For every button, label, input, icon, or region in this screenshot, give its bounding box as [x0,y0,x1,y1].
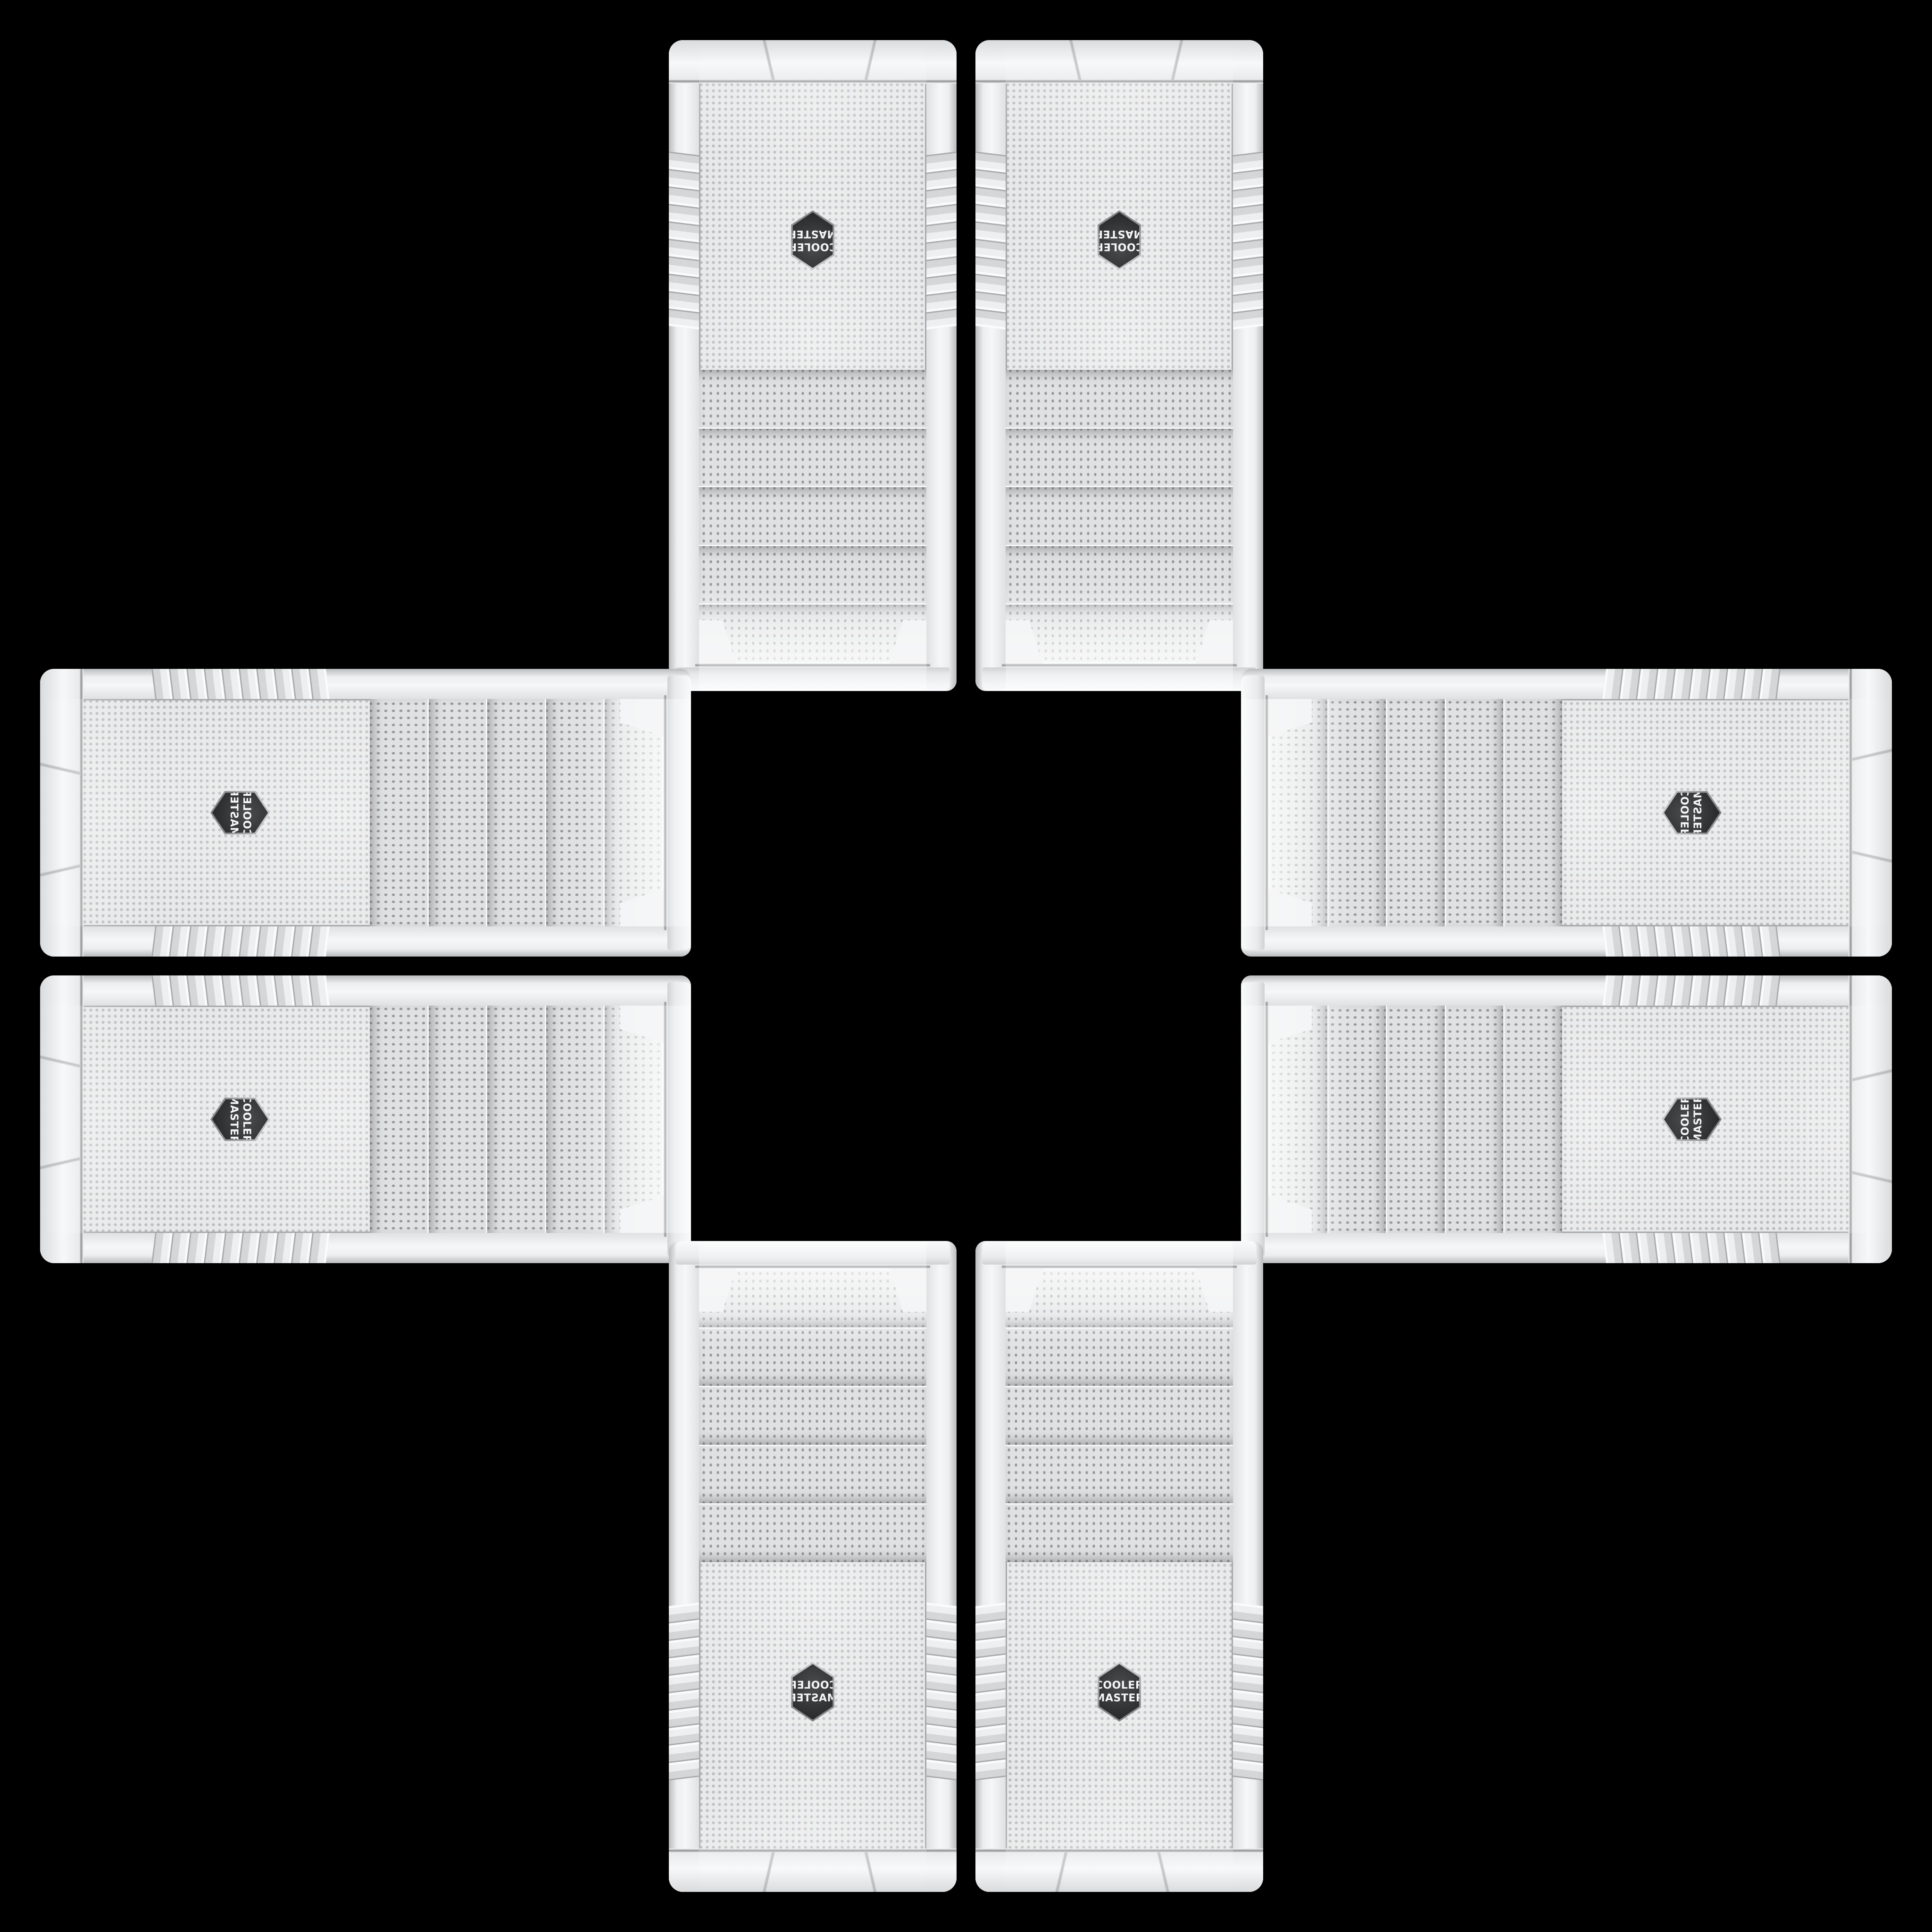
cooler-master-logo-icon: COOLER MASTER [1098,212,1141,268]
drive-bay-covers [699,1268,926,1562]
logo-text-line2: MASTER [788,227,838,240]
drive-bay-covers [370,1006,664,1233]
logo-text-line2: MASTER [1095,227,1144,240]
case-top-edge-cap [667,675,691,950]
grip-ribs-left [1602,1233,1781,1263]
case-side-bezel-right [1241,975,1892,1006]
case-side-bezel-right [669,1241,699,1892]
drive-bay-covers [370,699,664,926]
logo-text-line1: COOLER [789,240,837,253]
case-top-edge-cap [667,982,691,1257]
grip-ribs-right [975,151,1006,330]
product-montage-canvas: COOLER MASTER [0,0,1932,1932]
cooler-master-logo-badge: COOLER MASTER [210,789,270,836]
drive-bay-covers [1006,370,1233,664]
logo-text-line1: COOLER [240,1095,253,1144]
case-side-bezel-right [40,1233,691,1263]
cooler-master-logo-badge: COOLER MASTER [1662,1096,1722,1143]
drive-bay-cover [1006,370,1233,429]
chrome-trim-bottom [669,80,957,83]
case-front-panel: COOLER MASTER [1006,40,1233,691]
case-top-edge-cap [675,667,950,691]
drive-bay-cover [1386,1006,1445,1233]
case-front-panel: COOLER MASTER [1241,1006,1892,1233]
drive-bay-cover [1327,1006,1386,1233]
case-top-left: COOLER MASTER [669,40,957,691]
mesh-intake-panel: COOLER MASTER [699,1562,926,1849]
grip-ribs-left [975,1602,1006,1781]
drive-bay-cover [370,699,429,926]
drive-bay-cover [1503,1006,1562,1233]
chrome-trim-top [695,664,930,667]
pc-case: COOLER MASTER [1241,975,1892,1263]
drive-bay-cover [1006,546,1233,605]
drive-bay-cover [1006,1327,1233,1386]
drive-bay-cover [1006,1445,1233,1504]
case-bottom-left: COOLER MASTER [669,1241,957,1892]
chrome-trim-top [1002,664,1237,667]
case-side-bezel-left [1241,1233,1892,1263]
case-bottom-cap [669,1849,957,1892]
chrome-trim-bottom [975,80,1263,83]
mesh-intake-panel: COOLER MASTER [83,1006,370,1233]
cooler-master-logo-icon: COOLER MASTER [212,791,268,834]
grip-ribs-left [1602,669,1781,699]
drive-bay-cover [699,1445,926,1504]
drive-bay-cover [699,370,926,429]
case-bottom-cap [40,975,83,1263]
cooler-master-logo-badge: COOLER MASTER [1662,789,1722,836]
drive-bay-cover [699,1327,926,1386]
case-side-bezel-left [40,975,691,1006]
drive-bay-cover [370,1006,429,1233]
drive-bay-cover [1445,699,1504,926]
cooler-master-logo-badge: COOLER MASTER [789,1662,836,1722]
drive-bay-cover [1006,487,1233,546]
logo-text-line2: MASTER [1692,788,1705,838]
mesh-intake-panel: COOLER MASTER [1562,1006,1849,1233]
case-side-bezel-right [669,40,699,691]
case-top-edge-cap [675,1241,950,1265]
grip-ribs-right [669,151,699,330]
logo-text-line1: COOLER [1679,789,1692,837]
chrome-trim-bottom [975,1849,1263,1852]
cooler-master-logo-icon: COOLER MASTER [791,1664,834,1720]
chrome-trim-bottom [1849,975,1852,1263]
case-top-edge-cap [982,667,1257,691]
chrome-trim-top [664,1002,667,1237]
case-right-top: COOLER MASTER [1241,669,1892,957]
grip-ribs-right [669,1602,699,1781]
grip-ribs-left [926,151,957,330]
chrome-trim-bottom [669,1849,957,1852]
drive-bay-cover [699,1503,926,1562]
chrome-trim-bottom [80,975,83,1263]
case-side-bezel-left [1241,669,1892,699]
case-side-bezel-right [975,40,1006,691]
drive-bay-cover [699,1386,926,1445]
grip-ribs-left [1233,151,1263,330]
drive-bay-cover [1006,1386,1233,1445]
drive-bay-covers [1268,1006,1562,1233]
case-front-panel: COOLER MASTER [699,1241,926,1892]
pc-case: COOLER MASTER [1241,669,1892,957]
drive-bay-cover [1006,429,1233,488]
case-top-edge-cap [1241,982,1265,1257]
logo-text-line2: MASTER [788,1692,838,1705]
case-bottom-cap [975,1849,1263,1892]
grip-ribs-right [1602,975,1781,1006]
chrome-trim-bottom [1849,669,1852,957]
pc-case: COOLER MASTER [669,1241,957,1892]
pc-case: COOLER MASTER [40,669,691,957]
pc-case: COOLER MASTER [975,40,1263,691]
drive-bay-cover [699,429,926,488]
pc-case: COOLER MASTER [669,40,957,691]
case-bottom-cap [975,40,1263,83]
case-bottom-cap [40,669,83,957]
cooler-master-logo-icon: COOLER MASTER [212,1098,268,1141]
logo-text-line2: MASTER [227,788,240,838]
grip-ribs-right [151,669,330,699]
grip-ribs-right [151,1233,330,1263]
drive-bay-covers [1268,699,1562,926]
mesh-intake-panel: COOLER MASTER [699,83,926,370]
chrome-trim-top [1002,1265,1237,1268]
drive-bay-cover [1386,699,1445,926]
logo-text-line1: COOLER [1679,1095,1692,1144]
drive-bay-cover [1503,699,1562,926]
mesh-intake-panel: COOLER MASTER [1006,83,1233,370]
logo-text-line2: MASTER [227,1095,240,1144]
drive-bay-cover [1006,1503,1233,1562]
cooler-master-logo-icon: COOLER MASTER [1098,1664,1141,1720]
logo-text-line1: COOLER [1095,1679,1144,1692]
case-side-bezel-right [40,669,691,699]
grip-ribs-left [151,975,330,1006]
case-left-bottom: COOLER MASTER [40,975,691,1263]
pc-case: COOLER MASTER [40,975,691,1263]
case-bottom-cap [1849,669,1892,957]
case-bottom-right: COOLER MASTER [975,1241,1263,1892]
mesh-intake-panel: COOLER MASTER [1562,699,1849,926]
drive-bay-cover [429,1006,488,1233]
logo-text-line1: COOLER [789,1679,837,1692]
case-top-right: COOLER MASTER [975,40,1263,691]
case-front-panel: COOLER MASTER [1241,699,1892,926]
logo-text-line1: COOLER [1095,240,1144,253]
chrome-trim-top [695,1265,930,1268]
case-bottom-cap [1849,975,1892,1263]
chrome-trim-bottom [80,669,83,957]
case-bottom-cap [669,40,957,83]
cooler-master-logo-badge: COOLER MASTER [1096,210,1143,270]
cooler-master-logo-icon: COOLER MASTER [1664,791,1720,834]
chrome-trim-top [1265,695,1268,930]
drive-bay-cover [429,699,488,926]
mesh-intake-panel: COOLER MASTER [1006,1562,1233,1849]
grip-ribs-left [926,1602,957,1781]
drive-bay-cover [699,487,926,546]
drive-bay-cover [546,1006,605,1233]
case-side-bezel-left [926,40,957,691]
cooler-master-logo-icon: COOLER MASTER [791,212,834,268]
case-side-bezel-right [1241,926,1892,957]
pc-case: COOLER MASTER [975,1241,1263,1892]
drive-bay-cover [487,1006,546,1233]
logo-text-line2: MASTER [1692,1095,1705,1144]
grip-ribs-right [1233,1602,1263,1781]
case-top-edge-cap [1241,675,1265,950]
case-side-bezel-left [1233,40,1263,691]
case-front-panel: COOLER MASTER [40,699,691,926]
case-side-bezel-right [1233,1241,1263,1892]
case-side-bezel-left [40,926,691,957]
grip-ribs-left [151,926,330,957]
case-top-edge-cap [982,1241,1257,1265]
logo-text-line2: MASTER [1095,1692,1144,1705]
drive-bay-cover [546,699,605,926]
case-side-bezel-left [975,1241,1006,1892]
cooler-master-logo-badge: COOLER MASTER [210,1096,270,1143]
cooler-master-logo-icon: COOLER MASTER [1664,1098,1720,1141]
logo-text-line1: COOLER [240,789,253,837]
case-front-panel: COOLER MASTER [699,40,926,691]
drive-bay-cover [1327,699,1386,926]
case-left-top: COOLER MASTER [40,669,691,957]
drive-bay-cover [1445,1006,1504,1233]
drive-bay-cover [699,546,926,605]
chrome-trim-top [664,695,667,930]
drive-bay-covers [699,370,926,664]
case-side-bezel-left [926,1241,957,1892]
case-front-panel: COOLER MASTER [1006,1241,1233,1892]
grip-ribs-right [1602,926,1781,957]
case-right-bottom: COOLER MASTER [1241,975,1892,1263]
mesh-intake-panel: COOLER MASTER [83,699,370,926]
case-front-panel: COOLER MASTER [40,1006,691,1233]
drive-bay-cover [487,699,546,926]
cooler-master-logo-badge: COOLER MASTER [1096,1662,1143,1722]
drive-bay-covers [1006,1268,1233,1562]
cooler-master-logo-badge: COOLER MASTER [789,210,836,270]
chrome-trim-top [1265,1002,1268,1237]
